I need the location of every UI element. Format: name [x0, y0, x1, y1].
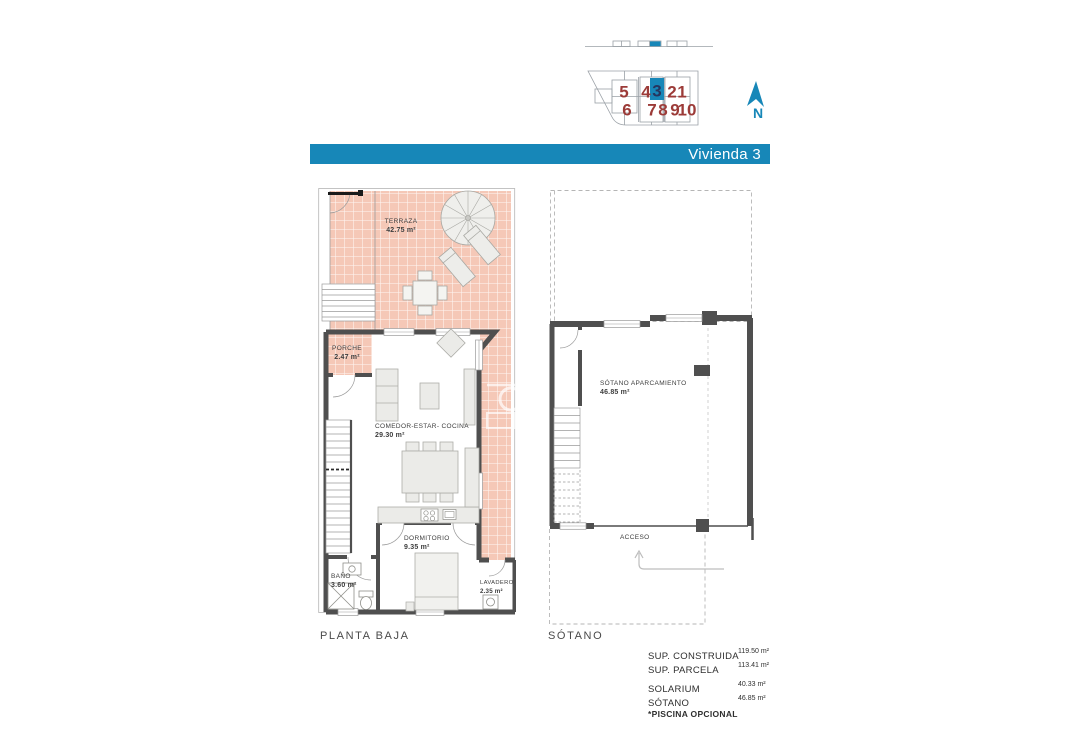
ground-floor-plan: TERRAZA 42.75 m² PORCHE 2.47 m² COMEDOR-… [318, 185, 516, 617]
basement-plan: SÓTANO APARCAMIENTO 46.85 m² ACCESO [548, 188, 758, 630]
site-elevation-highlight [650, 41, 661, 46]
site-plan-unit-8: 8 [658, 102, 667, 119]
tv-unit [464, 369, 475, 425]
room-label-dormitorio: DORMITORIO 9.35 m² [404, 535, 464, 553]
access-arrow-icon [635, 551, 724, 569]
summary-row-value: 119.50 m² [738, 648, 769, 655]
dining-set [402, 442, 458, 502]
room-area: 42.75 m² [358, 226, 444, 235]
title-bar-label: Vivienda 3 [688, 146, 770, 163]
wall-pillar [702, 311, 717, 325]
room-name: SÓTANO APARCAMIENTO [600, 380, 710, 388]
room-area: 3.60 m² [331, 581, 375, 590]
room-name: COMEDOR-ESTAR- COCINA [375, 423, 479, 431]
room-label-lavadero: LAVADERO 2.35 m² [480, 580, 514, 596]
site-plan-unit-4: 4 [641, 84, 650, 101]
column [694, 365, 710, 376]
windows [560, 315, 702, 530]
walls [550, 318, 753, 540]
room-area: 46.85 m² [600, 388, 710, 397]
room-label-salon: COMEDOR-ESTAR- COCINA 29.30 m² [375, 423, 479, 441]
caption-sotano: SÓTANO [548, 630, 603, 642]
room-label-terraza: TERRAZA 42.75 m² [358, 218, 444, 236]
room-name: TERRAZA [358, 218, 444, 226]
room-area: 2.35 m² [480, 588, 514, 596]
bed [406, 553, 458, 611]
room-label-porche: PORCHE 2.47 m² [324, 345, 370, 363]
north-arrow-icon [747, 81, 764, 107]
summary-footnote: *PISCINA OPCIONAL [648, 709, 738, 719]
coffee-table [420, 383, 439, 409]
summary-row: SUP. PARCELA 113.41 m² [648, 660, 778, 672]
summary-row-label: SÓTANO [648, 698, 689, 709]
room-name: ACCESO [620, 534, 670, 542]
site-plan-unit-3: 3 [652, 83, 661, 100]
summary-table: SUP. CONSTRUIDA 119.50 m² SUP. PARCELA 1… [648, 646, 778, 736]
wall-pillar [696, 519, 709, 532]
summary-row: SUP. CONSTRUIDA 119.50 m² [648, 646, 778, 658]
room-name: DORMITORIO [404, 535, 464, 543]
site-plan-unit-5: 5 [619, 84, 628, 101]
site-plan-unit-2: 2 [667, 84, 676, 101]
parcel-boundary [550, 191, 752, 625]
room-area: 2.47 m² [324, 353, 370, 362]
site-plan-unit-6: 6 [622, 102, 631, 119]
summary-row-value: 113.41 m² [738, 662, 769, 669]
terrace-stairs [322, 284, 375, 321]
summary-row: SÓTANO 46.85 m² [648, 693, 778, 705]
title-bar: Vivienda 3 [310, 144, 770, 164]
summary-row: SOLARIUM 40.33 m² [648, 679, 778, 691]
door-swing [560, 330, 578, 348]
toilet-icon [359, 591, 373, 610]
north-label: N [753, 105, 763, 121]
room-name: BAÑO [331, 573, 375, 581]
room-name: LAVADERO [480, 580, 514, 588]
window-midlines [560, 318, 702, 526]
access-label: ACCESO [620, 534, 670, 542]
room-name: PORCHE [324, 345, 370, 353]
site-plan: 5 6 4 3 2 1 7 8 9 10 N [580, 25, 780, 145]
basement-stairs [554, 408, 580, 524]
site-elevation [585, 41, 713, 47]
room-area: 29.30 m² [375, 431, 479, 440]
summary-row-value: 46.85 m² [738, 695, 766, 702]
sofa [376, 369, 398, 421]
site-plan-unit-1: 1 [677, 84, 686, 101]
room-label-aparcamiento: SÓTANO APARCAMIENTO 46.85 m² [600, 380, 710, 398]
room-label-bano: BAÑO 3.60 m² [331, 573, 375, 591]
site-plan-unit-7: 7 [647, 102, 656, 119]
summary-row-value: 40.33 m² [738, 681, 766, 688]
room-area: 9.35 m² [404, 543, 464, 552]
summary-row-label: SUP. PARCELA [648, 665, 719, 676]
floor-plan-sheet: 5 6 4 3 2 1 7 8 9 10 N Vivienda 3 [0, 0, 1080, 750]
interior-stairs [326, 420, 351, 553]
caption-planta-baja: PLANTA BAJA [320, 630, 410, 642]
basement-plan-drawing [548, 188, 758, 630]
washer-icon [483, 595, 498, 609]
site-plan-unit-10: 10 [678, 102, 697, 119]
